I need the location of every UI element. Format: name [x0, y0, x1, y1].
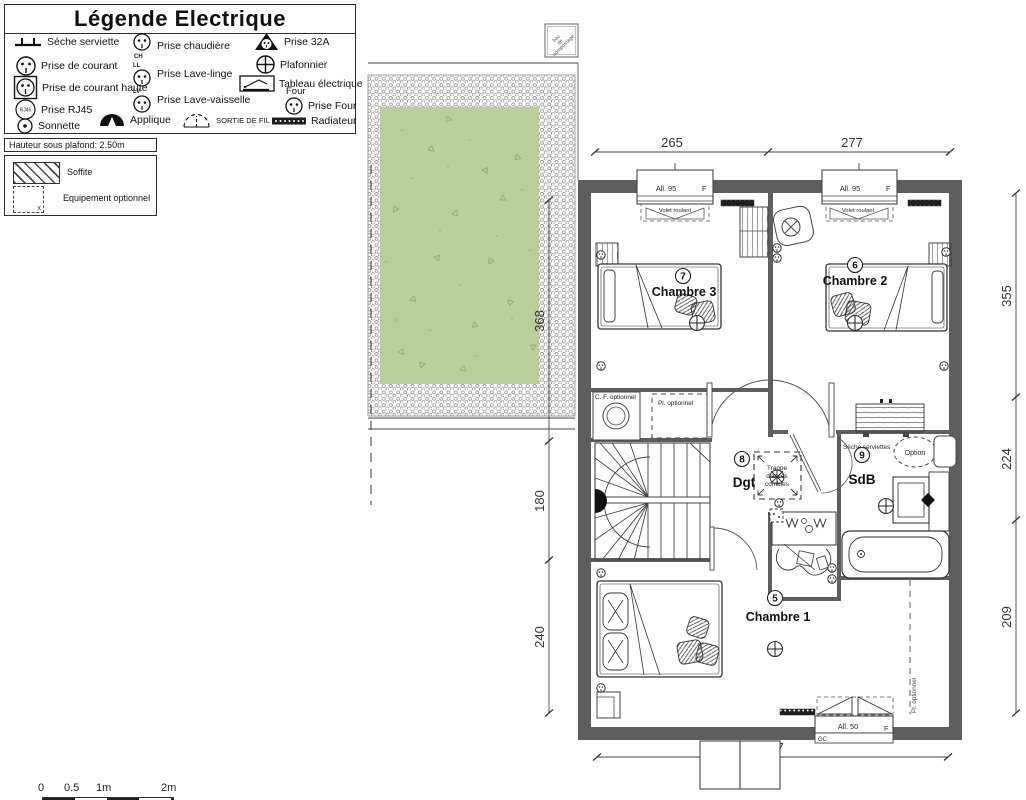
dim-right-2: 224: [999, 448, 1014, 470]
radiator-icon: [271, 116, 307, 126]
chambre3: 7 Chambre 3: [596, 207, 768, 331]
window-sill-label: All. 95: [840, 184, 860, 193]
svg-text:LL: LL: [133, 63, 141, 69]
outlet-symbol: [597, 362, 605, 370]
window-sill-label: All. 95: [656, 184, 676, 193]
legend-item-label: Prise Four: [308, 100, 356, 112]
towel-dryer: [856, 404, 924, 432]
svg-text:RJ45: RJ45: [20, 108, 32, 114]
scale-label-05: 0.5: [64, 782, 79, 794]
room-number: 9: [859, 451, 865, 462]
legend-item-ceiling-light: Plafonnier: [255, 54, 327, 75]
legend-item-label: Sonnette: [38, 120, 80, 132]
door-swing: [714, 528, 757, 570]
legend-item-applique: Applique: [98, 112, 171, 128]
room-number: 8: [739, 455, 745, 466]
dim-right-1: 355: [999, 285, 1014, 307]
ceiling-light-icon: [255, 54, 276, 75]
towel-rail-icon: [13, 35, 43, 49]
pillow: [604, 270, 615, 322]
dim-right-3: 209: [999, 606, 1014, 628]
legend-item-label: Prise 32A: [284, 36, 330, 48]
room-name: SdB: [849, 472, 876, 487]
window-south: All. 50 F GC: [815, 697, 893, 743]
floorplan-page: bac de compostage 265 277 368 180 240 35…: [0, 0, 1026, 800]
outlet-high-icon: [13, 75, 38, 100]
wc-tank: [934, 436, 956, 467]
outlet-symbol: [828, 575, 836, 583]
room-name: Chambre 3: [652, 285, 717, 299]
closet-optional-vertical-label: Pl. optionnel: [911, 678, 918, 713]
attic-hatch-label: combles: [765, 481, 789, 488]
door-leaf: [710, 527, 714, 570]
legend-item-wire-outlet: SORTIE DE FIL: [181, 112, 270, 129]
scale-bar: 0 0.5 1m 2m: [0, 780, 260, 800]
oven-tag: Four: [286, 86, 306, 97]
legend-item-washer-outlet: LL Prise Lave-linge: [131, 60, 232, 88]
door-leaf: [707, 383, 712, 437]
room-name: Chambre 1: [746, 610, 811, 624]
room-number: 7: [680, 272, 686, 283]
corner-duct: [597, 692, 620, 718]
staircase: [595, 443, 710, 560]
option-label: Option: [905, 450, 926, 457]
boiler-outlet-icon: CH: [131, 33, 153, 59]
outlet-32a-icon: [253, 31, 280, 52]
optional-equipment-label: Equipement optionnel: [63, 193, 150, 203]
electric-panel-icon: [239, 73, 275, 95]
legend-item-boiler-outlet: CH Prise chaudière: [131, 33, 230, 59]
plafonnier-symbol: [848, 316, 863, 331]
applique-icon: [98, 112, 126, 128]
legend-title: Légende Electrique: [5, 5, 355, 34]
electric-legend-panel: Légende Electrique Séche serviette Prise…: [4, 4, 356, 134]
window-type-label: F: [886, 184, 891, 193]
symbols-info-box: Soffite x Equipement optionnel: [4, 155, 157, 216]
scale-label-2m: 2m: [161, 782, 176, 794]
chambre2: 6 Chambre 2: [772, 204, 951, 331]
radiator: [908, 200, 941, 206]
oven-outlet-icon: [284, 96, 304, 116]
ceiling-height-label: Hauteur sous plafond: 2.50m: [9, 140, 125, 150]
washer-outlet-icon: LL: [131, 60, 153, 88]
wardrobe: [740, 207, 768, 257]
plafonnier-symbol: [879, 499, 894, 514]
legend-item-doorbell: Sonnette: [16, 117, 80, 135]
paper: [797, 551, 814, 567]
lawn: [380, 107, 539, 384]
room-number: 6: [852, 261, 858, 272]
radiator: [780, 709, 815, 715]
scale-label-1m: 1m: [96, 782, 111, 794]
window-type-label: F: [884, 724, 889, 733]
legend-item-label: Prise RJ45: [41, 104, 92, 116]
svg-text:LV: LV: [133, 89, 140, 95]
chimney-base: [700, 741, 780, 789]
attic-hatch-label: d'accès: [766, 473, 787, 480]
shutter-label: Volet roulant: [659, 208, 692, 214]
window-sill-label: All. 50: [838, 722, 858, 731]
legend-item-radiator: Radiateur: [271, 115, 357, 127]
legend-item-label: Prise Lave-linge: [157, 68, 232, 80]
cf-optional-label: C. F. optionnel: [595, 394, 636, 401]
outlet-symbol: [940, 362, 948, 370]
bathroom-door-leaf: [790, 434, 821, 492]
outlet-symbol: [775, 499, 783, 507]
window-type-label: F: [702, 184, 707, 193]
outlet-icon: [15, 55, 37, 77]
legend-item-label: Plafonnier: [280, 59, 327, 71]
compost-bin: bac de compostage: [545, 24, 578, 58]
plafonnier-symbol: [690, 316, 705, 331]
outlet-symbol: [773, 254, 781, 262]
shutter-label: Volet roulant: [842, 208, 875, 214]
scale-label-0: 0: [38, 782, 44, 794]
legend-item-outlet-high: Prise de courant haute: [13, 75, 148, 100]
dim-left-2: 180: [532, 490, 547, 512]
svg-text:CH: CH: [134, 54, 143, 59]
legend-item-towel-rail: Séche serviette: [13, 35, 119, 49]
legend-item-label: Séche serviette: [47, 36, 119, 48]
radiator: [721, 200, 754, 206]
garden-terrace: bac de compostage: [368, 24, 578, 505]
legend-item-label: Prise chaudière: [157, 40, 230, 52]
door-leaf: [829, 383, 834, 437]
room-name: Dgt: [733, 475, 756, 490]
optional-marker: x: [38, 205, 42, 212]
degagement: 8 Dgt Trappe d'accès combles: [733, 452, 801, 500]
legend-item-label: Radiateur: [311, 115, 357, 127]
dim-left-3: 240: [532, 626, 547, 648]
room-name: Chambre 2: [823, 274, 888, 288]
outlet-symbol: [773, 244, 781, 252]
bathtub: [842, 531, 949, 578]
ceiling-height-box: Hauteur sous plafond: 2.50m: [4, 138, 157, 152]
legend-item-label: Prise Lave-vaisselle: [157, 94, 250, 106]
legend-item-dishwasher-outlet: LV Prise Lave-vaisselle: [131, 86, 250, 114]
outlet-symbol: [597, 684, 605, 692]
dishwasher-outlet-icon: LV: [131, 86, 153, 114]
legend-item-outlet: Prise de courant: [15, 55, 117, 77]
washer-outlet-box: [770, 509, 783, 522]
legend-item-label: Applique: [130, 114, 171, 126]
legend-item-label: SORTIE DE FIL: [216, 116, 270, 125]
legend-item-oven-outlet: Four Prise Four: [284, 96, 356, 116]
closet-optional-label: Pl. optionnel: [658, 400, 693, 407]
plafonnier-symbol: [768, 642, 783, 657]
legend-item-label: Prise de courant: [41, 60, 117, 72]
legend-item-32a-outlet: Prise 32A: [253, 31, 330, 52]
room-number: 5: [772, 594, 778, 605]
optional-equipment-swatch: x: [13, 186, 44, 213]
attic-hatch-label: Trappe: [767, 465, 787, 472]
outlet-symbol: [597, 251, 605, 259]
wire-outlet-icon: [181, 112, 212, 129]
dim-top-1: 265: [661, 135, 683, 150]
window-note-label: GC: [818, 737, 828, 743]
outlet-symbol: [828, 564, 836, 572]
salle-de-bain: Sèche serviettes Option 9 SdB: [790, 399, 956, 578]
dim-top-2: 277: [841, 135, 863, 150]
pillow: [932, 271, 943, 323]
doorbell-icon: [16, 117, 34, 135]
paper: [816, 556, 828, 570]
soffite-swatch: [13, 162, 60, 184]
dim-left-1: 368: [532, 310, 547, 332]
vanity-nook: [770, 509, 836, 575]
soffite-label: Soffite: [67, 167, 92, 177]
outlet-symbol: [597, 569, 605, 577]
outlet-symbol: [942, 248, 950, 256]
